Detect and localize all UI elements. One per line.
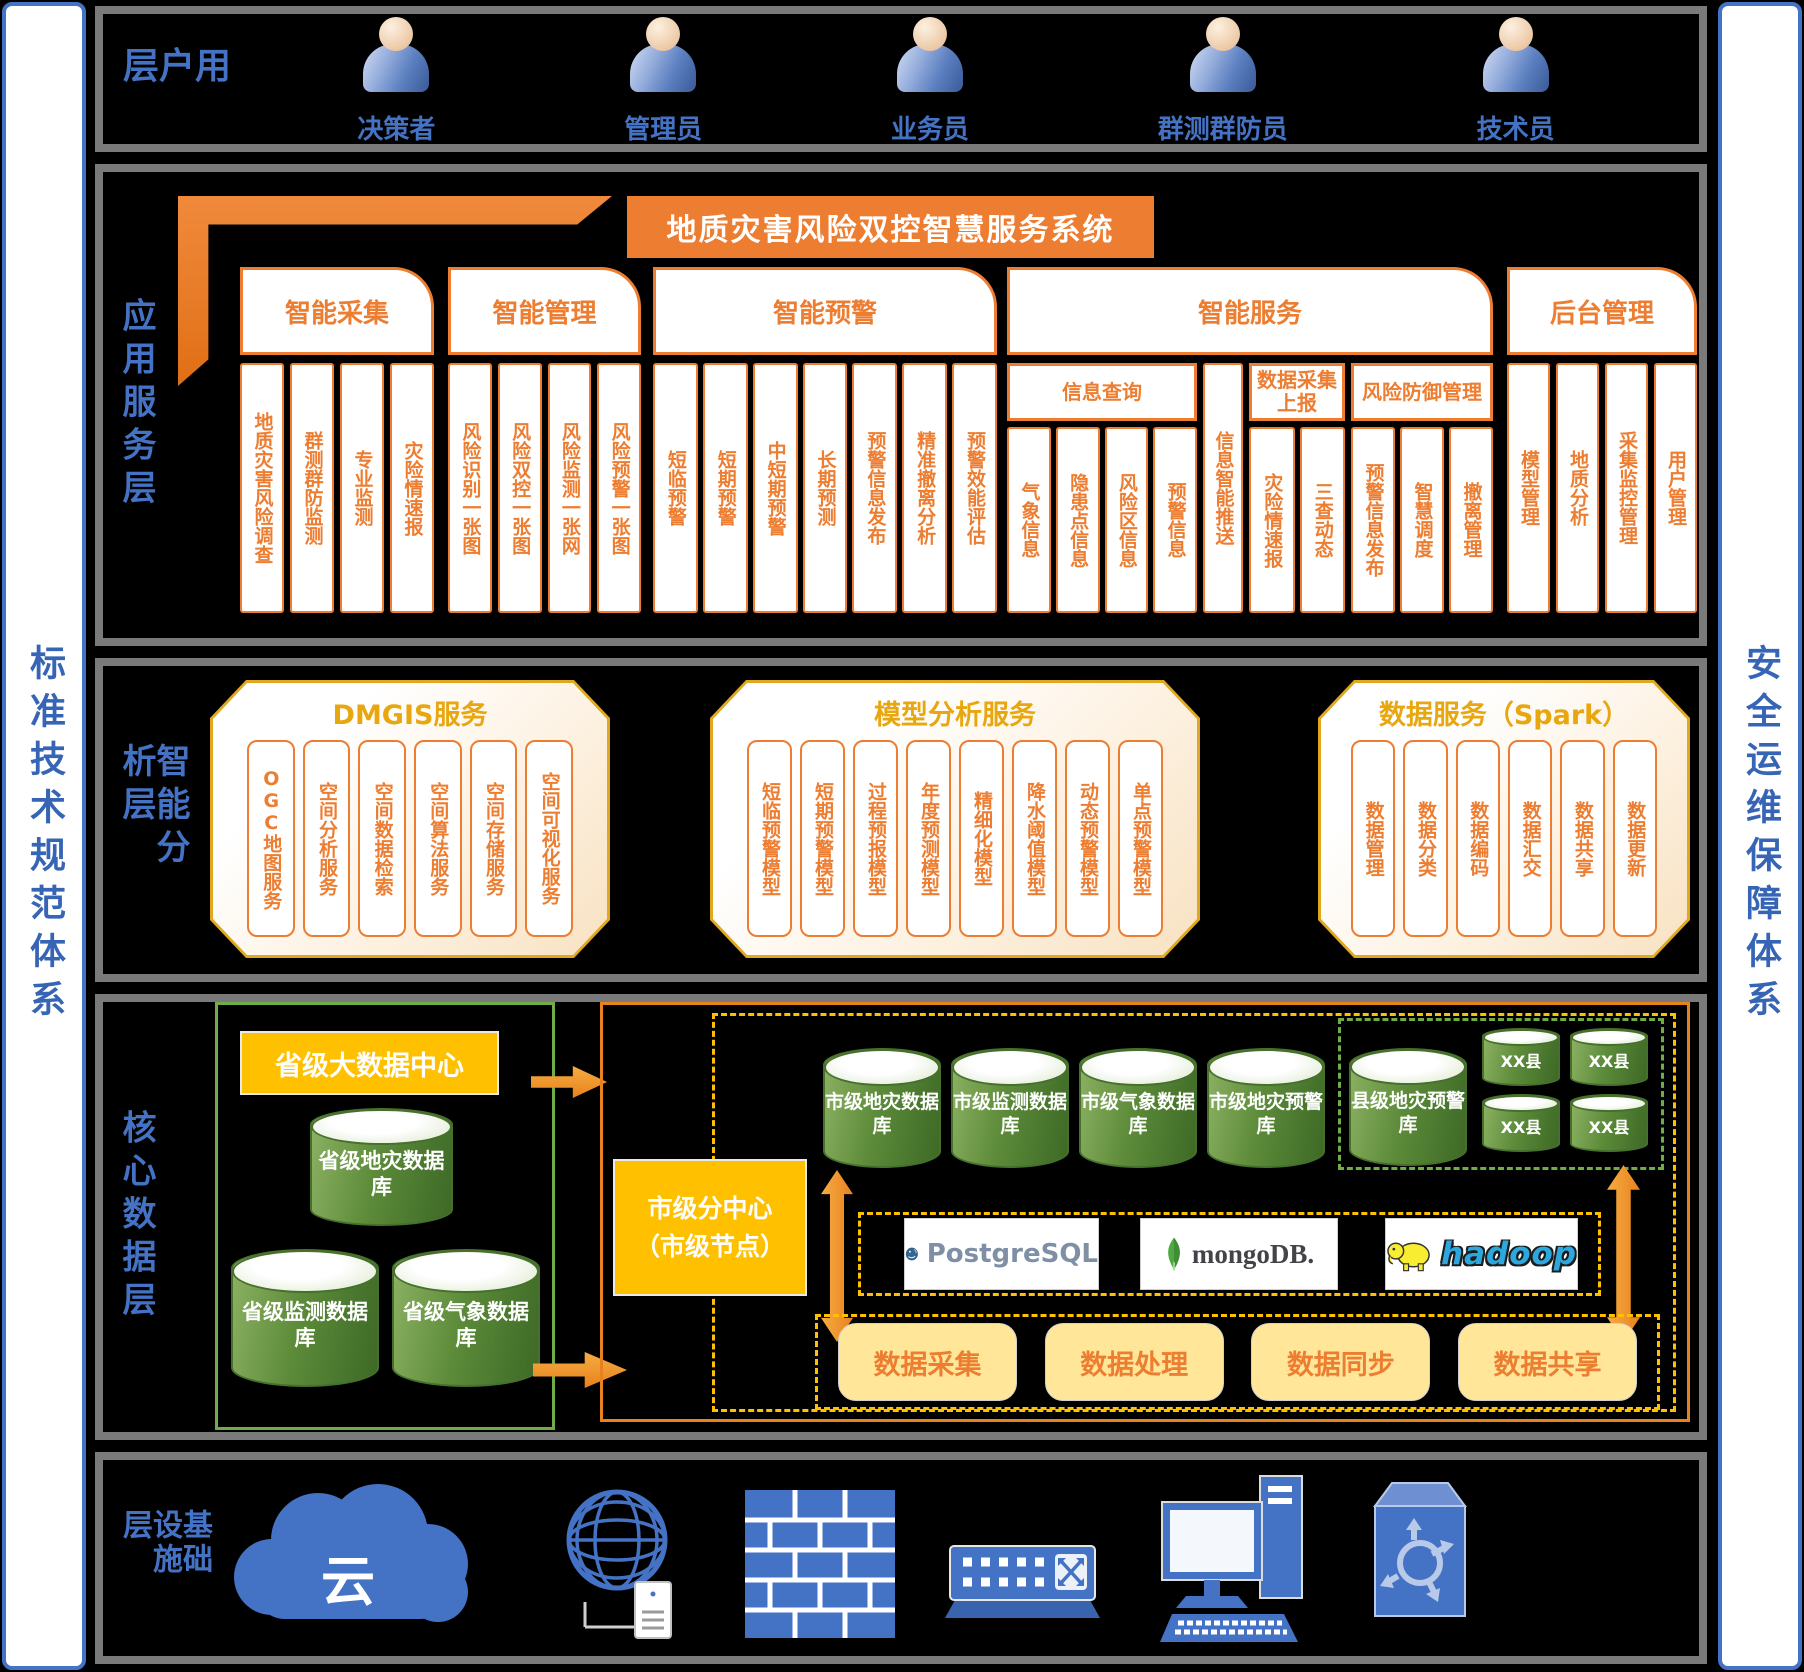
app-function: 地质灾害风险调查 bbox=[240, 363, 284, 613]
app-function: 三查动态 bbox=[1300, 427, 1346, 613]
user-layer-label: 用户层 bbox=[119, 47, 227, 112]
subgroup-head: 风险防御管理 bbox=[1351, 363, 1493, 421]
database-cylinder: 市级地灾数据库 bbox=[823, 1048, 941, 1168]
hadoop-logo: hadoop bbox=[1385, 1218, 1578, 1290]
model-analysis-block: 模型分析服务 短临预警模型 短期预警模型 过程预报模型 年度预测模型 精细化模型… bbox=[710, 680, 1200, 958]
app-function: 信息智能推送 bbox=[1203, 363, 1243, 613]
app-function: 风险识别一张图 bbox=[448, 363, 492, 613]
subgroup-head: 数据采集上报 bbox=[1249, 363, 1345, 421]
pipeline-step: 数据采集 bbox=[838, 1323, 1017, 1401]
app-function: 灾险情速报 bbox=[1249, 427, 1295, 613]
user-label: 技术员 bbox=[1477, 109, 1555, 146]
analysis-item: 数据汇交 bbox=[1508, 740, 1552, 937]
app-function: 风险监测一张网 bbox=[548, 363, 592, 613]
cloud-icon: 云 bbox=[210, 1482, 485, 1641]
analysis-item: 过程预报模型 bbox=[853, 740, 898, 937]
right-rail: 安全运维保障体系 bbox=[1718, 2, 1802, 1670]
analysis-item: 空间数据检索 bbox=[358, 740, 406, 937]
core-data-layer-panel: 核心数据层 省级大数据中心 省级地灾数据库 省级监测数据库 省级气象数据库 市级… bbox=[95, 994, 1707, 1440]
analysis-item: 短临预警模型 bbox=[747, 740, 792, 937]
group-cols-manage: 风险识别一张图 风险双控一张图 风险监测一张网 风险预警一张图 bbox=[448, 363, 641, 613]
group-head-manage: 智能管理 bbox=[448, 267, 641, 355]
app-function: 风险双控一张图 bbox=[498, 363, 542, 613]
analysis-layer-label: 智能分析层 bbox=[119, 743, 187, 897]
pipeline-step: 数据处理 bbox=[1045, 1323, 1224, 1401]
database-cylinder: 省级气象数据库 bbox=[392, 1249, 540, 1387]
dmgis-service-block: DMGIS服务 OGC地图服务 空间分析服务 空间数据检索 空间算法服务 空间存… bbox=[210, 680, 610, 958]
analysis-item: 精细化模型 bbox=[959, 740, 1004, 937]
app-function: 预警效能评估 bbox=[952, 363, 997, 613]
postgresql-logo: PostgreSQL bbox=[904, 1218, 1099, 1290]
firewall-icon bbox=[745, 1490, 895, 1642]
app-function: 预警信息 bbox=[1153, 427, 1197, 613]
app-function: 灾险情速报 bbox=[390, 363, 434, 613]
user-label: 管理员 bbox=[624, 109, 702, 146]
subgroup-head: 信息查询 bbox=[1007, 363, 1197, 421]
analysis-item: 空间存储服务 bbox=[470, 740, 518, 937]
analysis-item: 数据编码 bbox=[1456, 740, 1500, 937]
county-node-cylinder: XX县 bbox=[1482, 1028, 1560, 1086]
subgroup-push: 信息智能推送 bbox=[1203, 363, 1243, 613]
person-icon bbox=[1190, 17, 1256, 105]
app-function: 风险预警一张图 bbox=[597, 363, 641, 613]
user-label: 群测群防员 bbox=[1158, 109, 1288, 146]
user-row: 决策者 管理员 业务员 群测群防员 技术员 bbox=[263, 22, 1649, 140]
group-head-backend: 后台管理 bbox=[1507, 267, 1697, 355]
workstation-icon bbox=[1160, 1474, 1310, 1650]
analysis-item: 动态预警模型 bbox=[1065, 740, 1110, 937]
postgresql-elephant-icon bbox=[905, 1235, 919, 1273]
pipeline-dashed-region: 数据采集 数据处理 数据同步 数据共享 bbox=[815, 1314, 1660, 1410]
group-head-service: 智能服务 bbox=[1007, 267, 1493, 355]
app-function: 撤离管理 bbox=[1449, 427, 1493, 613]
pipeline-step: 数据共享 bbox=[1458, 1323, 1637, 1401]
app-function: 长期预测 bbox=[803, 363, 848, 613]
block-title: DMGIS服务 bbox=[213, 683, 607, 732]
person-icon bbox=[363, 17, 429, 105]
left-rail: 标准技术规范体系 bbox=[2, 2, 86, 1670]
group-cols-service: 信息查询 气象信息 隐患点信息 风险区信息 预警信息 信息智能推送 数据采集上报… bbox=[1007, 363, 1493, 613]
user-label: 决策者 bbox=[357, 109, 435, 146]
province-center-title: 省级大数据中心 bbox=[242, 1033, 497, 1093]
app-function: 地质分析 bbox=[1556, 363, 1599, 613]
app-function: 短临预警 bbox=[653, 363, 698, 613]
app-function: 中短期预警 bbox=[753, 363, 798, 613]
app-function: 精准撤离分析 bbox=[902, 363, 947, 613]
app-function: 预警信息发布 bbox=[1351, 427, 1395, 613]
app-function: 采集监控管理 bbox=[1605, 363, 1648, 613]
user-layer-panel: 用户层 决策者 管理员 业务员 群测群防员 技术员 bbox=[95, 6, 1707, 152]
data-service-block: 数据服务（Spark） 数据管理 数据分类 数据编码 数据汇交 数据共享 数据更… bbox=[1318, 680, 1690, 958]
database-cylinder: 市级监测数据库 bbox=[951, 1048, 1069, 1168]
system-title: 地质灾害风险双控智慧服务系统 bbox=[627, 196, 1154, 258]
globe-server-icon bbox=[555, 1482, 690, 1646]
subgroup-report: 数据采集上报 灾险情速报 三查动态 bbox=[1249, 363, 1345, 613]
group-cols-warning: 短临预警 短期预警 中短期预警 长期预测 预警信息发布 精准撤离分析 预警效能评… bbox=[653, 363, 997, 613]
analysis-item: 数据管理 bbox=[1351, 740, 1395, 937]
router-icon bbox=[1370, 1478, 1470, 1637]
left-rail-label: 标准技术规范体系 bbox=[18, 644, 70, 1028]
database-cylinder: 市级气象数据库 bbox=[1079, 1048, 1197, 1168]
user-technician: 技术员 bbox=[1477, 17, 1555, 146]
user-decision-maker: 决策者 bbox=[357, 17, 435, 146]
user-label: 业务员 bbox=[891, 109, 969, 146]
group-cols-backend: 模型管理 地质分析 采集监控管理 用户管理 bbox=[1507, 363, 1697, 613]
pipeline-step: 数据同步 bbox=[1251, 1323, 1430, 1401]
person-icon bbox=[630, 17, 696, 105]
database-cylinder: 省级地灾数据库 bbox=[310, 1108, 453, 1226]
person-icon bbox=[897, 17, 963, 105]
analysis-item: OGC地图服务 bbox=[247, 740, 295, 937]
analysis-item: 空间可视化服务 bbox=[525, 740, 573, 937]
hadoop-elephant-icon bbox=[1386, 1236, 1433, 1272]
user-administrator: 管理员 bbox=[624, 17, 702, 146]
user-operator: 业务员 bbox=[891, 17, 969, 146]
analysis-item: 数据更新 bbox=[1613, 740, 1657, 937]
block-title: 模型分析服务 bbox=[713, 683, 1197, 732]
block-title: 数据服务（Spark） bbox=[1321, 683, 1687, 732]
infra-layer-panel: 基础设施层 云 bbox=[95, 1452, 1707, 1664]
app-function: 预警信息发布 bbox=[852, 363, 897, 613]
group-head-collect: 智能采集 bbox=[240, 267, 434, 355]
person-icon bbox=[1483, 17, 1549, 105]
database-cylinder: 县级地灾预警库 bbox=[1349, 1048, 1467, 1166]
core-layer-label: 核心数据层 bbox=[119, 1110, 153, 1325]
app-function: 用户管理 bbox=[1654, 363, 1697, 613]
database-cylinder: 市级地灾预警库 bbox=[1207, 1048, 1325, 1168]
group-head-warning: 智能预警 bbox=[653, 267, 997, 355]
analysis-item: 空间分析服务 bbox=[303, 740, 351, 937]
group-cols-collect: 地质灾害风险调查 群测群防监测 专业监测 灾险情速报 bbox=[240, 363, 434, 613]
infra-layer-label: 基础设施层 bbox=[119, 1509, 209, 1607]
analysis-item: 短期预警模型 bbox=[800, 740, 845, 937]
app-function: 短期预警 bbox=[703, 363, 748, 613]
analysis-item: 单点预警模型 bbox=[1118, 740, 1163, 937]
database-cylinder: 省级监测数据库 bbox=[231, 1249, 379, 1387]
analysis-item: 年度预测模型 bbox=[906, 740, 951, 937]
analysis-layer-panel: 智能分析层 DMGIS服务 OGC地图服务 空间分析服务 空间数据检索 空间算法… bbox=[95, 658, 1707, 982]
app-function: 隐患点信息 bbox=[1056, 427, 1100, 613]
app-function: 风险区信息 bbox=[1105, 427, 1149, 613]
analysis-item: 数据分类 bbox=[1403, 740, 1447, 937]
network-switch-icon bbox=[945, 1538, 1100, 1626]
county-node-cylinder: XX县 bbox=[1570, 1094, 1648, 1152]
analysis-item: 空间算法服务 bbox=[414, 740, 462, 937]
user-monitor: 群测群防员 bbox=[1158, 17, 1288, 146]
app-function: 群测群防监测 bbox=[290, 363, 334, 613]
mongodb-logo: mongoDB. bbox=[1140, 1218, 1338, 1290]
city-subcenter-box: 市级分中心 （市级节点） bbox=[615, 1161, 805, 1294]
county-node-cylinder: XX县 bbox=[1482, 1094, 1560, 1152]
subgroup-defense: 风险防御管理 预警信息发布 智慧调度 撤离管理 bbox=[1351, 363, 1493, 613]
right-rail-label: 安全运维保障体系 bbox=[1734, 644, 1786, 1028]
subgroup-info-query: 信息查询 气象信息 隐患点信息 风险区信息 预警信息 bbox=[1007, 363, 1197, 613]
cloud-label: 云 bbox=[321, 1550, 375, 1613]
mongodb-leaf-icon bbox=[1164, 1236, 1184, 1272]
app-layer-panel: 应用服务层 地质灾害风险双控智慧服务系统 智能采集 智能管理 智能预警 智能服务… bbox=[95, 164, 1707, 646]
app-function: 智慧调度 bbox=[1400, 427, 1444, 613]
app-function: 模型管理 bbox=[1507, 363, 1550, 613]
app-layer-label: 应用服务层 bbox=[119, 298, 153, 513]
county-node-cylinder: XX县 bbox=[1570, 1028, 1648, 1086]
app-function: 专业监测 bbox=[340, 363, 384, 613]
analysis-item: 数据共享 bbox=[1560, 740, 1604, 937]
analysis-item: 降水阈值模型 bbox=[1012, 740, 1057, 937]
architecture-diagram: 标准技术规范体系 安全运维保障体系 用户层 决策者 管理员 业务员 群测群防员 bbox=[0, 0, 1804, 1672]
app-function: 气象信息 bbox=[1007, 427, 1051, 613]
